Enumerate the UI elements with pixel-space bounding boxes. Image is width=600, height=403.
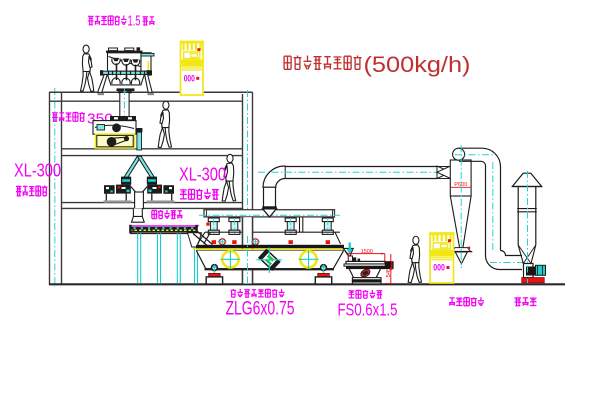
svg-text:XL-300: XL-300 (179, 164, 226, 185)
svg-text:ZLG6x0.75: ZLG6x0.75 (226, 299, 295, 320)
svg-text:000: 000 (433, 262, 445, 272)
svg-text:XL-300: XL-300 (14, 160, 61, 181)
svg-text:1.5: 1.5 (128, 14, 141, 30)
svg-text:FS0.6x1.5: FS0.6x1.5 (338, 300, 398, 320)
svg-text:1500: 1500 (361, 249, 373, 255)
svg-text:000: 000 (184, 73, 195, 83)
svg-text:(500kg/h): (500kg/h) (364, 52, 471, 77)
